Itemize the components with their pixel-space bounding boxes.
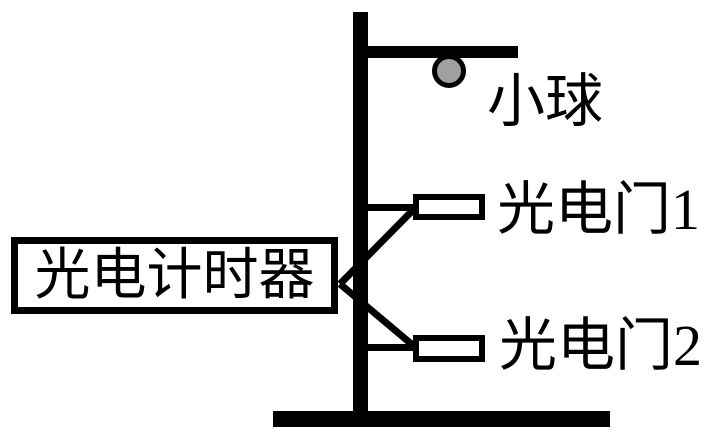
photogate2-label: 光电门2 (499, 316, 702, 377)
ball-label: 小球 (487, 72, 603, 133)
photogate2 (413, 335, 485, 362)
wire-to-photogate1 (340, 208, 415, 284)
photogate1-label: 光电门1 (497, 180, 700, 241)
wire-to-photogate2 (340, 284, 415, 347)
timer-box: 光电计时器 (11, 237, 338, 314)
small-ball (432, 54, 466, 88)
photogate1 (413, 194, 485, 220)
photogate1-mount (366, 204, 414, 211)
timer-label: 光电计时器 (35, 248, 315, 304)
stand-pole (353, 12, 368, 412)
photogate2-mount (366, 344, 414, 351)
stand-base (273, 411, 610, 427)
experiment-diagram: 光电计时器 小球 光电门1 光电门2 (0, 0, 728, 440)
